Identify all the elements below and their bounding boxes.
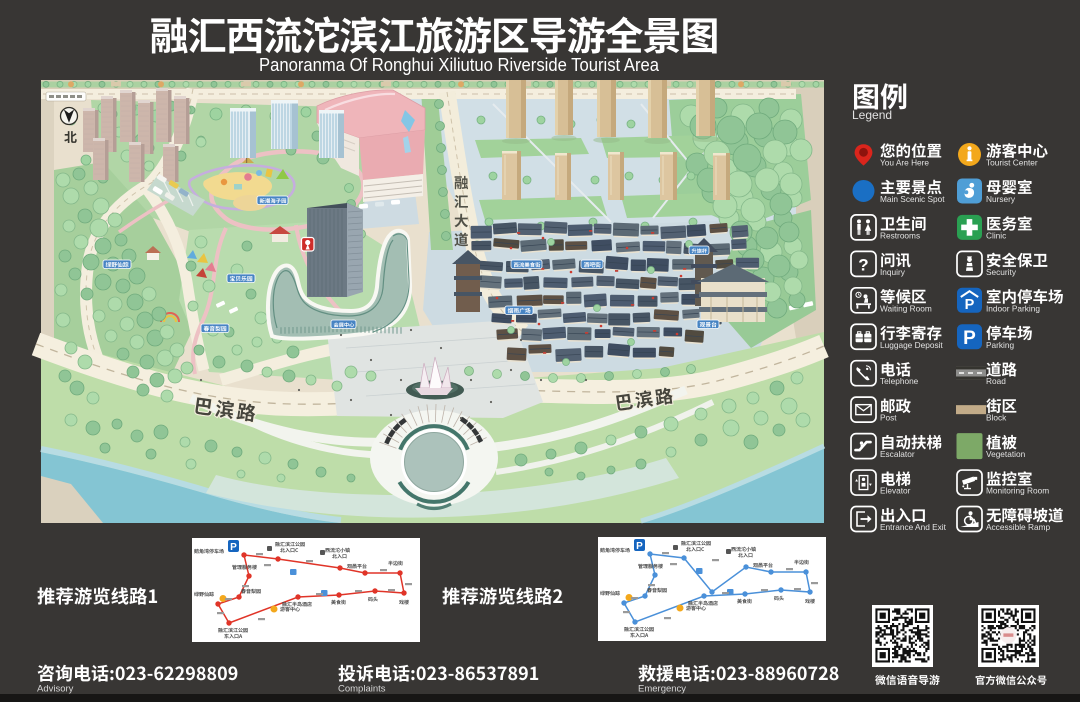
svg-text:Panoranma Of Ronghui Xiliutuo: Panoranma Of Ronghui Xiliutuo Riverside … <box>259 55 660 75</box>
svg-text:Telephone: Telephone <box>880 376 919 386</box>
svg-text:Indoor Parking: Indoor Parking <box>986 303 1040 313</box>
svg-text:P: P <box>230 542 237 553</box>
svg-text:Accessible Ramp: Accessible Ramp <box>986 522 1050 532</box>
svg-text:Waiting Room: Waiting Room <box>880 303 932 313</box>
svg-text:Elevator: Elevator <box>880 486 911 496</box>
svg-text:Escalator: Escalator <box>880 449 915 459</box>
svg-text:Parking: Parking <box>986 340 1015 350</box>
svg-text:Monitoring Room: Monitoring Room <box>986 486 1049 496</box>
svg-text:Block: Block <box>986 413 1007 423</box>
svg-text:Nursery: Nursery <box>986 194 1016 204</box>
svg-text:Post: Post <box>880 413 897 423</box>
svg-text:Restrooms: Restrooms <box>880 230 920 240</box>
svg-text:Road: Road <box>986 376 1006 386</box>
svg-text:Security: Security <box>986 267 1017 277</box>
svg-text:Main Scenic Spot: Main Scenic Spot <box>880 194 945 204</box>
svg-text:P: P <box>963 328 976 349</box>
svg-text:P: P <box>965 297 975 313</box>
svg-text:Entrance And Exit: Entrance And Exit <box>880 522 947 532</box>
svg-text:?: ? <box>858 255 868 274</box>
svg-text:Advisory: Advisory <box>37 684 74 695</box>
svg-text:Emergency: Emergency <box>638 684 686 695</box>
svg-text:Luggage Deposit: Luggage Deposit <box>880 340 943 350</box>
svg-text:Complaints: Complaints <box>338 684 386 695</box>
svg-text:Vegetation: Vegetation <box>986 449 1026 459</box>
svg-text:Tourist Center: Tourist Center <box>986 158 1038 168</box>
svg-text:You Are Here: You Are Here <box>880 158 929 168</box>
svg-text:P: P <box>636 541 643 552</box>
svg-text:Inquiry: Inquiry <box>880 267 906 277</box>
svg-text:Clinic: Clinic <box>986 230 1006 240</box>
svg-text:Legend: Legend <box>852 108 892 122</box>
